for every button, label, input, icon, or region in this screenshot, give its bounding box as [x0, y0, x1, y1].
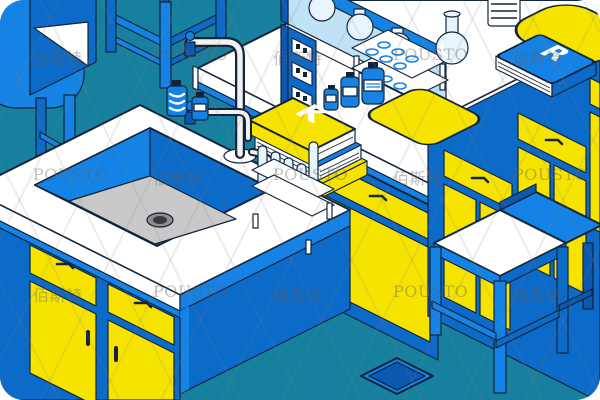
floor-drain	[361, 358, 433, 394]
drawer	[590, 78, 600, 109]
coil-beaker	[488, 0, 520, 26]
cabinet-door	[590, 112, 600, 232]
lab-illustration: K R	[0, 0, 600, 400]
faucet-valve	[186, 32, 195, 41]
reagent-bottle	[341, 72, 359, 107]
reagent-bottle	[362, 62, 384, 104]
faucet-tap	[185, 42, 195, 56]
lab-scene: K R	[0, 0, 600, 400]
